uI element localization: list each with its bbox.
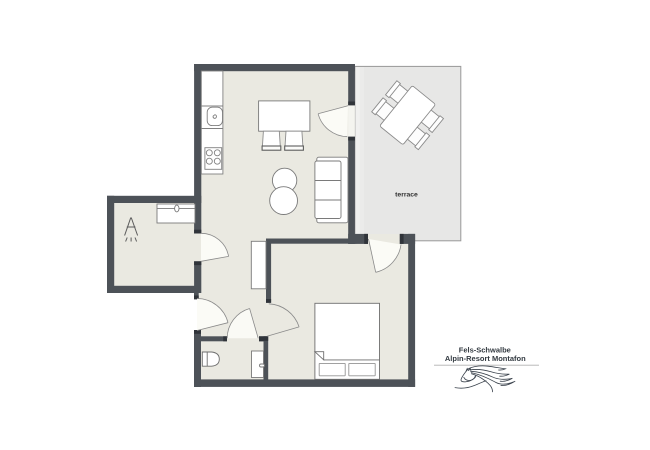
svg-text:Alpin-Resort Montafon: Alpin-Resort Montafon — [445, 354, 526, 363]
svg-text:terrace: terrace — [395, 192, 418, 199]
